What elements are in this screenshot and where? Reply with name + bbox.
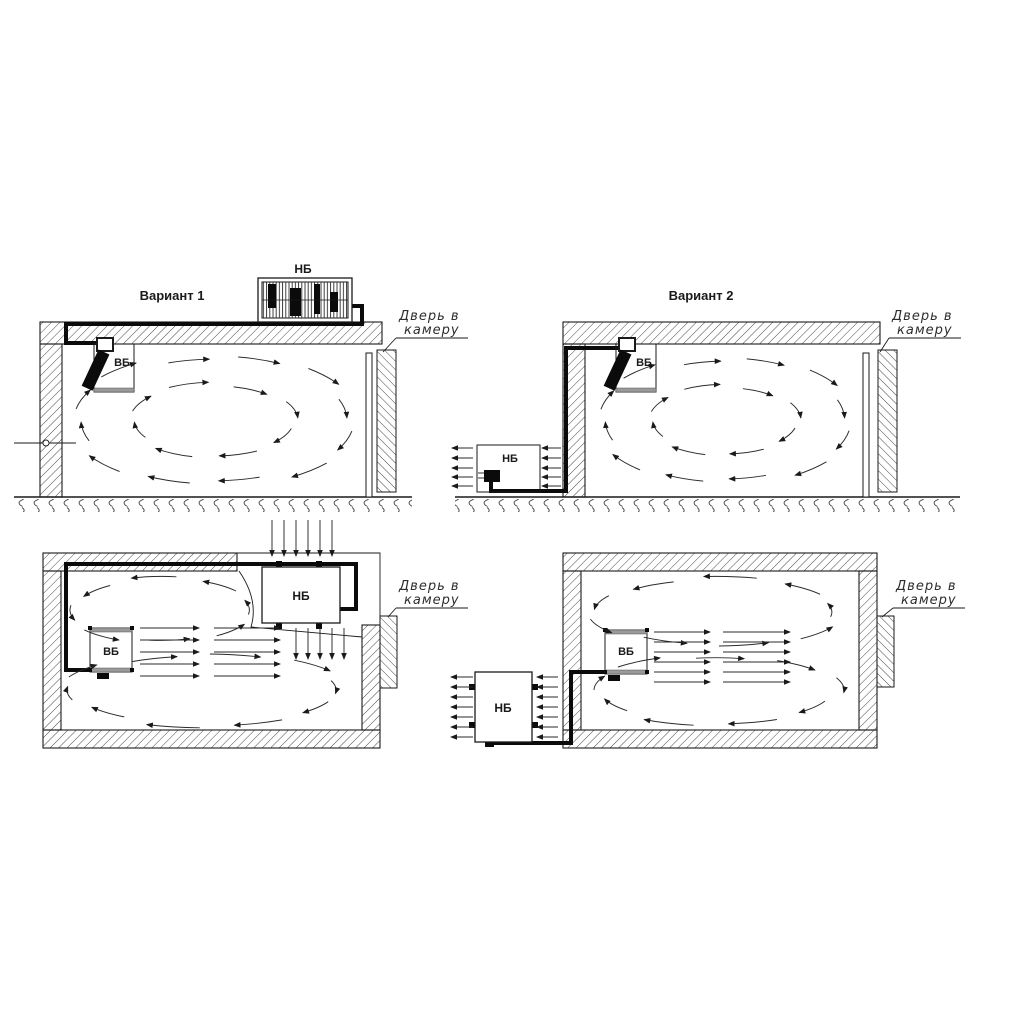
pipe-fitting bbox=[97, 673, 109, 679]
flow-arrow bbox=[84, 586, 110, 597]
refrigerant-pipe bbox=[491, 348, 619, 491]
flow-arrow bbox=[168, 359, 209, 363]
airflow-arrows bbox=[67, 520, 344, 728]
flow-arrow bbox=[605, 422, 612, 440]
door-label-line1: Дверь в bbox=[895, 579, 957, 594]
left-wall bbox=[43, 571, 61, 730]
coil-bar bbox=[605, 670, 647, 674]
corner-fitting bbox=[88, 626, 92, 630]
flow-arrow bbox=[672, 447, 705, 455]
flow-arrow bbox=[653, 422, 663, 436]
plan2-panel: НБ ВБ Дверь в камеру bbox=[451, 553, 965, 748]
door-callout: Дверь в камеру bbox=[388, 579, 468, 617]
flow-arrow bbox=[331, 681, 336, 694]
flow-arrow bbox=[217, 624, 245, 636]
flow-arrow bbox=[801, 627, 833, 639]
indoor-unit-base bbox=[616, 388, 656, 392]
outdoor-unit-label: НБ bbox=[502, 453, 518, 465]
cooling-scheme-page: Вариант 1 НБ ВБ bbox=[0, 0, 1024, 1024]
corner-fitting bbox=[88, 668, 92, 672]
airflow-diagram: Вариант 1 НБ ВБ bbox=[0, 0, 1024, 1024]
plan1-panel: НБ ВБ Дверь в камеру bbox=[43, 520, 468, 748]
door-label-line2: камеру bbox=[901, 593, 957, 608]
fan-housing bbox=[619, 338, 635, 351]
airflow-arrows bbox=[76, 357, 352, 483]
door-callout: Дверь в камеру bbox=[383, 309, 468, 352]
variant2-panel: Вариант 2 НБ ВБ Дверь в камеру bbox=[452, 288, 961, 512]
flow-arrow bbox=[594, 596, 609, 610]
outdoor-unit-nb: НБ bbox=[258, 262, 352, 326]
grille-shadow bbox=[330, 292, 338, 312]
flow-arrow bbox=[147, 725, 200, 728]
flow-arrow bbox=[684, 361, 721, 365]
flow-arrow bbox=[169, 382, 208, 387]
flow-arrow bbox=[133, 396, 151, 411]
flow-arrow bbox=[294, 660, 330, 671]
flow-arrow bbox=[274, 429, 291, 443]
indoor-unit-label: ВБ bbox=[636, 357, 652, 369]
coil-bar bbox=[90, 668, 132, 672]
door-label-line1: Дверь в bbox=[398, 309, 460, 324]
top-wall bbox=[563, 553, 877, 571]
flow-arrow bbox=[89, 456, 119, 472]
flow-arrow bbox=[618, 658, 660, 667]
flow-arrow bbox=[67, 687, 72, 700]
flow-arrow bbox=[132, 657, 177, 662]
mount-tab bbox=[276, 561, 282, 567]
flow-arrow bbox=[210, 654, 261, 657]
flow-arrow bbox=[134, 422, 145, 437]
grille-shadow bbox=[268, 284, 276, 308]
corner-fitting bbox=[645, 670, 649, 674]
flow-arrow bbox=[613, 455, 640, 470]
flow-arrow bbox=[837, 400, 844, 418]
flow-arrow bbox=[779, 428, 795, 441]
variant2-title: Вариант 2 bbox=[669, 288, 734, 303]
outdoor-unit-label: НБ bbox=[294, 262, 312, 276]
flow-arrow bbox=[219, 477, 260, 481]
indoor-unit-vb: ВБ bbox=[82, 338, 134, 392]
flow-arrow bbox=[836, 678, 844, 693]
flow-arrow bbox=[684, 384, 720, 389]
flow-arrow bbox=[790, 403, 800, 418]
flow-arrow bbox=[338, 431, 352, 450]
flow-arrow bbox=[235, 720, 283, 725]
flow-arrow bbox=[594, 676, 605, 690]
flow-arrow bbox=[696, 658, 744, 659]
flow-arrow bbox=[729, 475, 766, 479]
flow-arrow bbox=[704, 576, 757, 578]
door-label-line2: камеру bbox=[404, 323, 460, 338]
flow-arrow bbox=[785, 584, 820, 594]
flow-arrow bbox=[605, 699, 628, 711]
door-callout: Дверь в камеру bbox=[880, 309, 961, 352]
door-block bbox=[380, 616, 397, 688]
ground-hatch bbox=[14, 499, 412, 512]
variant1-title: Вариант 1 bbox=[140, 288, 205, 303]
flow-arrow bbox=[601, 391, 614, 409]
flow-arrow bbox=[810, 370, 837, 385]
right-wall bbox=[362, 625, 380, 730]
door-label-line1: Дверь в bbox=[891, 309, 953, 324]
bottom-wall bbox=[43, 730, 380, 748]
air-outlet-louver bbox=[82, 349, 110, 390]
outdoor-unit-nb: НБ bbox=[469, 672, 538, 742]
flow-arrow bbox=[651, 398, 668, 412]
indoor-unit-base bbox=[94, 388, 134, 392]
corner-fitting bbox=[603, 670, 607, 674]
right-wall bbox=[859, 571, 877, 730]
right-thin-wall bbox=[366, 353, 372, 497]
door-label-line1: Дверь в bbox=[398, 579, 460, 594]
flow-arrow bbox=[76, 390, 90, 409]
outdoor-unit-label: НБ bbox=[292, 589, 310, 603]
corner-fitting bbox=[130, 668, 134, 672]
coil-bar bbox=[90, 628, 132, 632]
compressor bbox=[484, 470, 500, 482]
flow-arrow bbox=[132, 576, 177, 578]
flow-arrow bbox=[203, 581, 236, 591]
corner-fitting bbox=[130, 626, 134, 630]
outdoor-unit-nb: НБ bbox=[477, 445, 540, 492]
flow-arrow bbox=[747, 359, 784, 365]
flow-arrow bbox=[81, 422, 89, 441]
corner-fitting bbox=[645, 628, 649, 632]
variant1-panel: Вариант 1 НБ ВБ bbox=[14, 262, 468, 512]
pipe-fitting bbox=[608, 675, 620, 681]
coil-bar bbox=[605, 630, 647, 634]
indoor-unit-vb: ВБ bbox=[603, 628, 649, 681]
grille-shadow bbox=[314, 284, 320, 314]
door-block bbox=[877, 616, 894, 687]
flow-arrow bbox=[634, 582, 674, 589]
flow-arrow bbox=[234, 387, 267, 394]
flow-arrow bbox=[836, 431, 849, 449]
flow-arrow bbox=[666, 475, 703, 481]
flow-arrow bbox=[92, 707, 124, 717]
door-callout: Дверь в камеру bbox=[882, 579, 965, 617]
flow-arrow bbox=[292, 463, 327, 477]
flow-arrow bbox=[70, 605, 75, 620]
flow-arrow bbox=[719, 643, 768, 646]
airflow-arrows bbox=[452, 359, 849, 486]
sensor-point bbox=[43, 440, 49, 446]
flow-arrow bbox=[644, 720, 693, 726]
flow-arrow bbox=[339, 399, 347, 418]
air-outlet-louver bbox=[604, 349, 632, 390]
bottom-wall bbox=[563, 730, 877, 748]
door-label-line2: камеру bbox=[404, 593, 460, 608]
fan-housing bbox=[97, 338, 113, 351]
roof-wall bbox=[563, 322, 880, 344]
flow-arrow bbox=[730, 449, 764, 454]
door-block bbox=[377, 350, 396, 492]
flow-arrow bbox=[148, 477, 189, 484]
flow-arrow bbox=[156, 448, 192, 456]
flow-arrow bbox=[795, 462, 826, 475]
flow-arrow bbox=[219, 451, 257, 456]
flow-arrow bbox=[743, 389, 773, 396]
mount-tab bbox=[316, 623, 322, 629]
grille-shadow bbox=[290, 288, 301, 316]
outdoor-unit-label: НБ bbox=[494, 701, 512, 715]
left-wall bbox=[40, 344, 62, 497]
ground-hatch bbox=[455, 499, 960, 512]
indoor-unit-label: ВБ bbox=[103, 646, 119, 658]
flow-arrow bbox=[828, 603, 832, 616]
door-block bbox=[878, 350, 897, 492]
indoor-unit-label: ВБ bbox=[618, 646, 634, 658]
flow-arrow bbox=[729, 720, 777, 724]
outdoor-unit-nb: НБ bbox=[262, 561, 340, 629]
flow-arrow bbox=[238, 357, 279, 364]
flow-arrow bbox=[245, 600, 249, 614]
mount-tab bbox=[316, 561, 322, 567]
door-label-line2: камеру bbox=[897, 323, 953, 338]
flow-arrow bbox=[799, 701, 825, 712]
flow-arrow bbox=[286, 402, 298, 418]
flow-arrow bbox=[308, 369, 338, 385]
right-thin-wall bbox=[863, 353, 869, 497]
flow-arrow bbox=[303, 702, 328, 713]
